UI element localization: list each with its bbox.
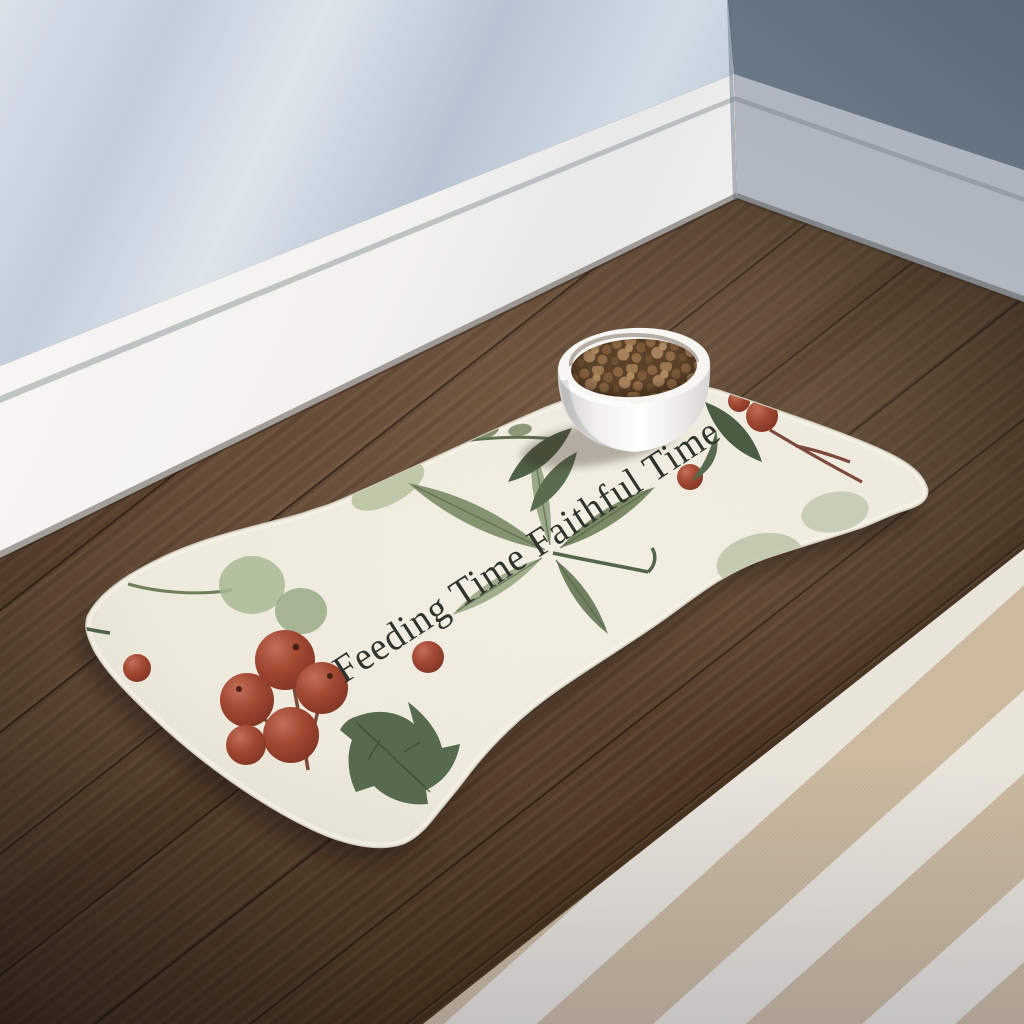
mat-and-bowl-art: Feeding Time Faithful Time [0,0,1024,1024]
sage-leaf-bottom [541,716,643,790]
scene: Feeding Time Faithful Time [0,0,1024,1024]
mat-fleece-texture [60,330,960,890]
feeding-mat: Feeding Time Faithful Time [60,330,960,890]
